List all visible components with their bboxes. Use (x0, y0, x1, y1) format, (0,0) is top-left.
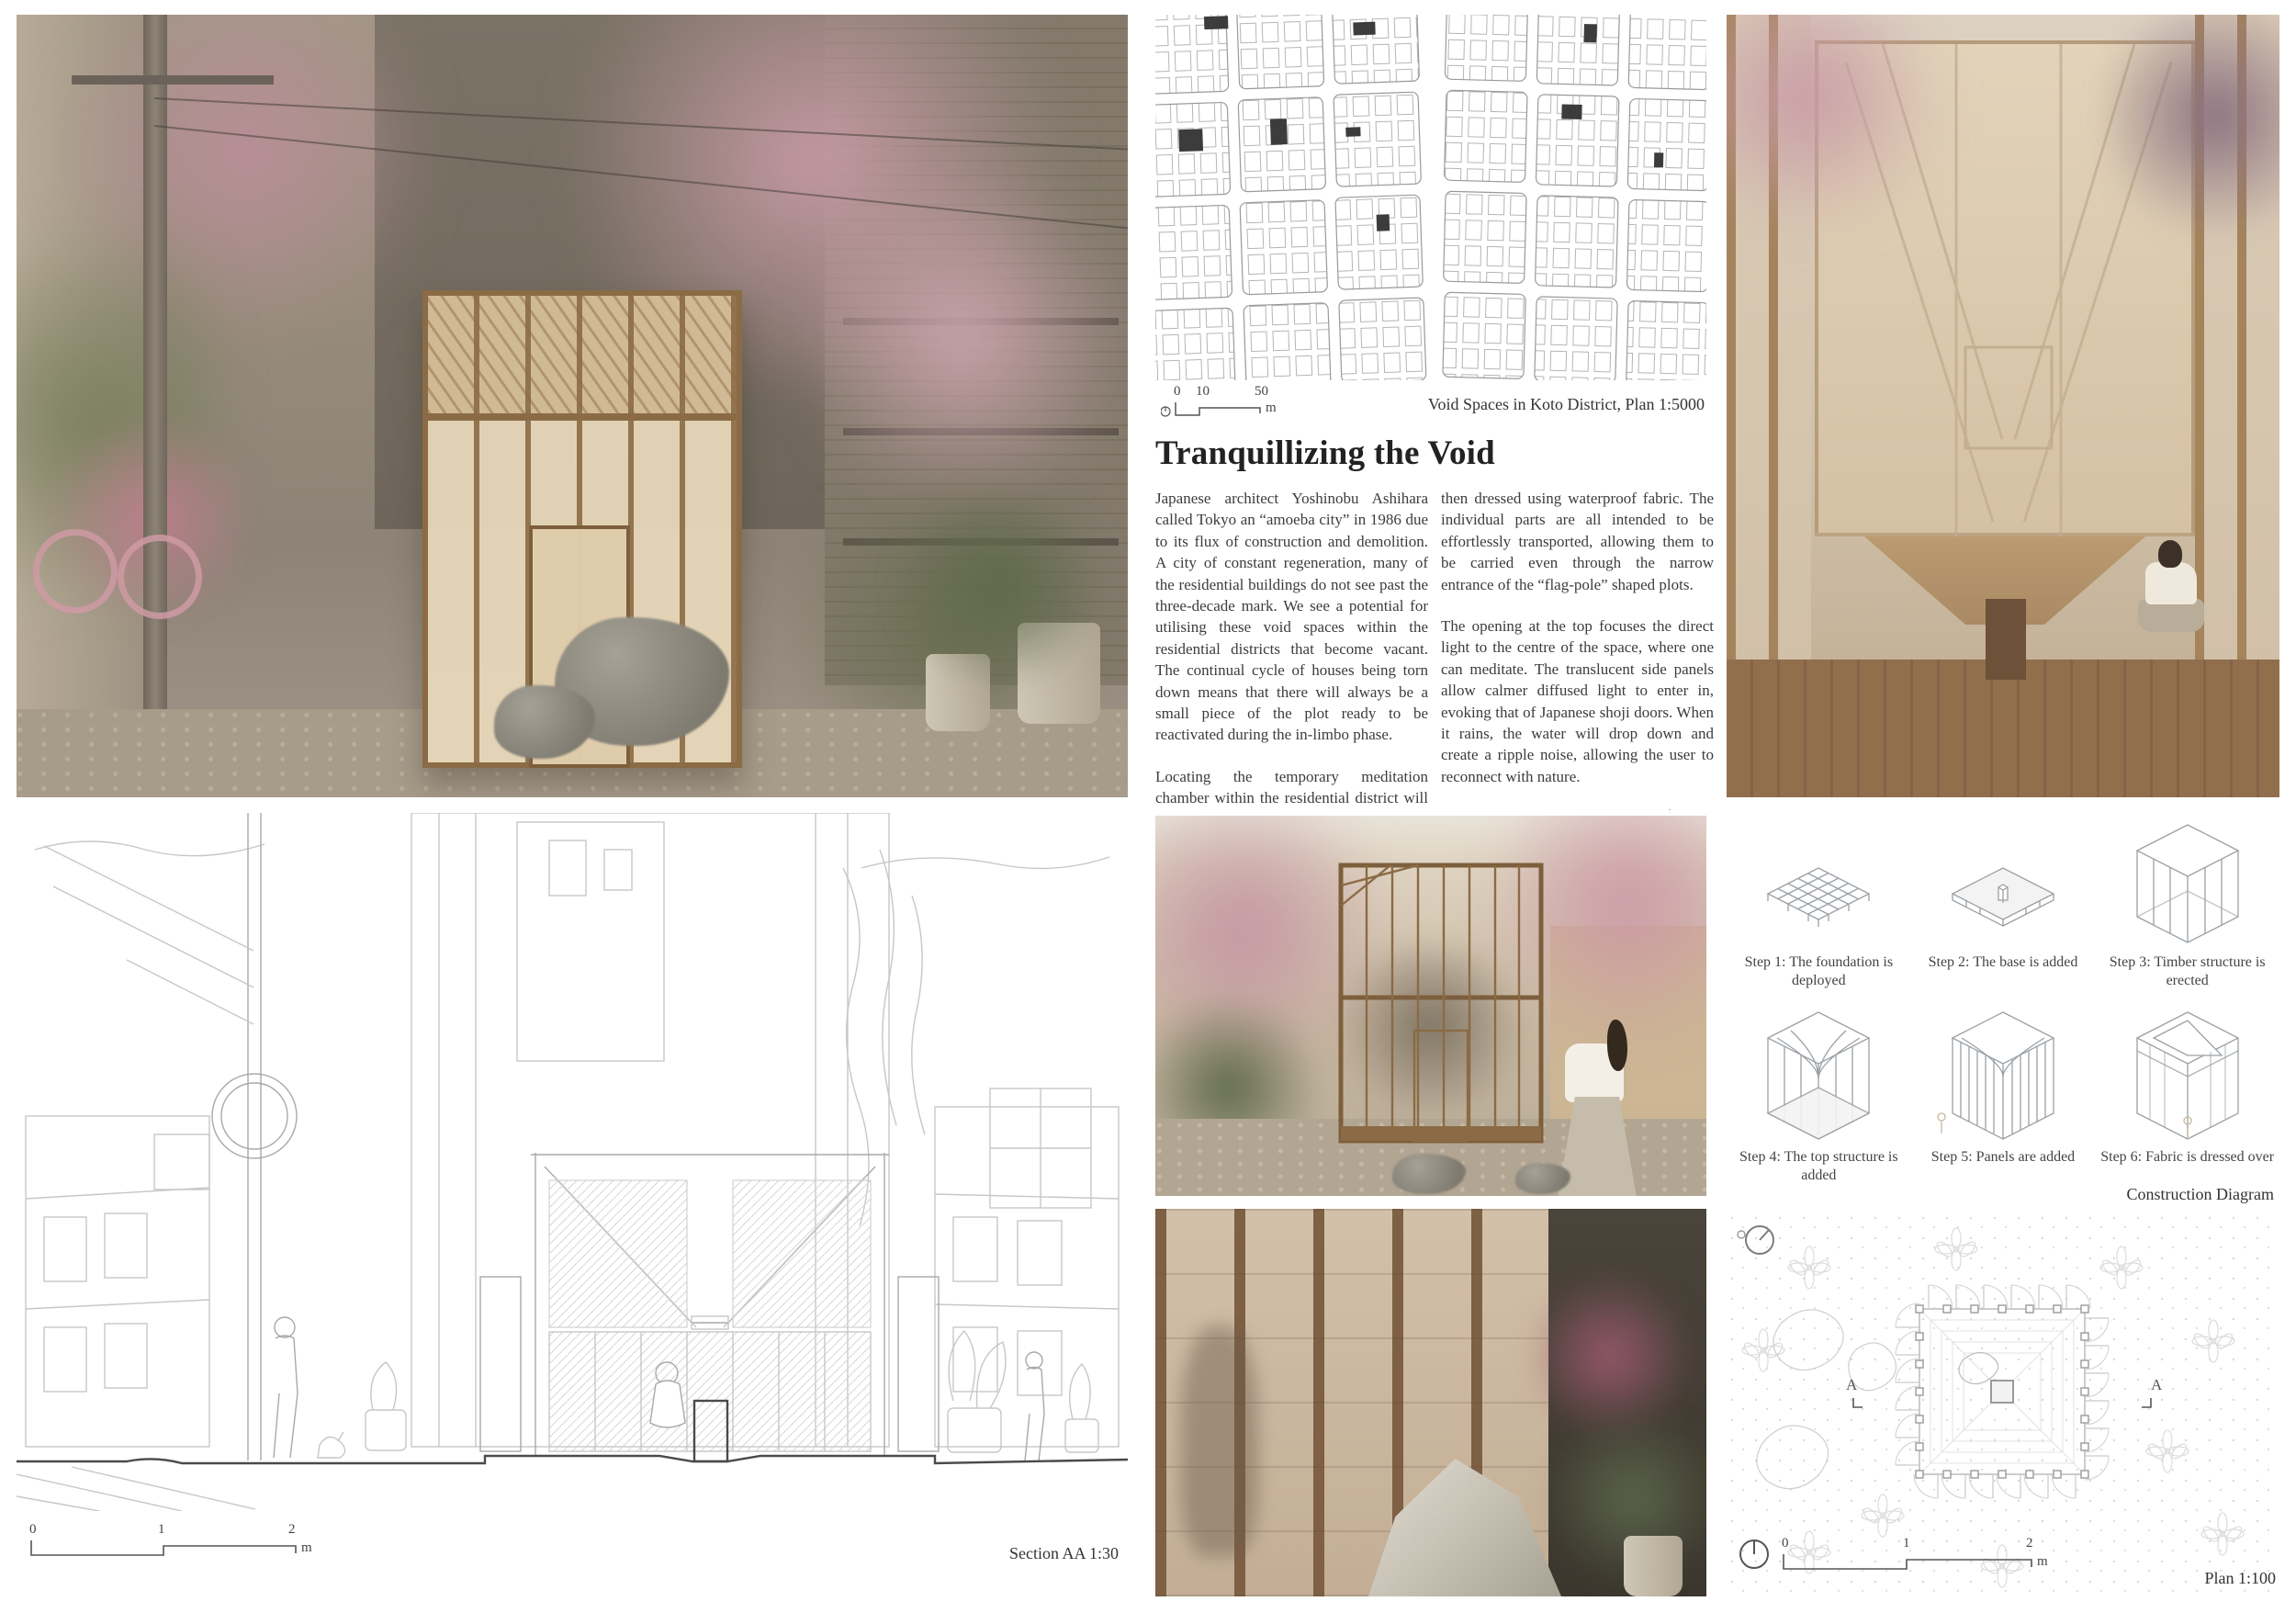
scale-tick: 10 (1196, 384, 1210, 400)
construction-step-6: Step 6: Fabric is dressed over (2095, 1010, 2279, 1205)
plan-drawing: A A 0 1 2 m Plan 1:100 (1727, 1212, 2279, 1596)
scale-tick: 0 (29, 1522, 37, 1538)
step-label: Step 5: Panels are added (1916, 1148, 2090, 1167)
step-label: Step 2: The base is added (1916, 953, 2090, 972)
step-label: Step 4: The top structure is added (1731, 1148, 1906, 1185)
shoji-panels-render-image (1155, 1209, 1706, 1596)
section-marker-A: A (2151, 1376, 2162, 1394)
scale-tick: 2 (288, 1522, 296, 1538)
blossom-canopy (788, 162, 1128, 511)
step-label: Step 3: Timber structure is erected (2100, 953, 2275, 990)
construction-step-1: Step 1: The foundation is deployed (1727, 816, 1911, 1010)
construction-step-4: Step 4: The top structure is added (1727, 1010, 1911, 1205)
section-scalebar: 0 1 2 m (29, 1522, 305, 1564)
base-iso-icon (1925, 816, 2081, 953)
timber-deck (1727, 660, 2279, 797)
construction-caption: Construction Diagram (2127, 1185, 2274, 1204)
interior-render-image (1727, 15, 2279, 797)
step-label: Step 1: The foundation is deployed (1731, 953, 1906, 990)
site-map-drawing (1155, 15, 1706, 380)
water-basin (1986, 599, 2026, 680)
section-lineart (17, 813, 1128, 1511)
figure-silhouette (1181, 1326, 1258, 1556)
bicycle-wheel (118, 535, 202, 619)
paragraph: Playing with the concept of Oku (奥), our… (1441, 807, 1714, 810)
scale-tick: 0 (1174, 384, 1181, 400)
north-arrow-icon (1736, 1536, 1773, 1573)
scale-unit: m (2037, 1554, 2048, 1570)
foundation-iso-icon (1740, 816, 1896, 953)
scale-tick: 0 (1782, 1536, 1789, 1551)
paragraph: Locating the temporary meditation chambe… (1155, 766, 1428, 810)
presentation-board: 0 1 2 m Section AA 1:30 (0, 0, 2296, 1624)
plant-pot (1624, 1536, 1683, 1596)
panels-iso-icon (1925, 1010, 2081, 1148)
frame-iso-icon (2110, 816, 2266, 953)
construction-diagram: Step 1: The foundation is deployed Step … (1727, 816, 2279, 1212)
scale-tick: 50 (1255, 384, 1268, 400)
plan-scalebar: 0 1 2 m (1782, 1536, 2002, 1578)
construction-step-2: Step 2: The base is added (1911, 816, 2096, 1010)
map-scalebar: 0 10 50 m (1161, 384, 1299, 426)
garden-walk-render-image (1155, 816, 1706, 1196)
section-marker-A: A (1846, 1376, 1857, 1394)
seated-woman-hair (2158, 540, 2182, 568)
scale-tick: 1 (158, 1522, 165, 1538)
plan-caption: Plan 1:100 (2204, 1569, 2276, 1588)
article-title: Tranquillizing the Void (1155, 434, 1714, 473)
scale-unit: m (1266, 400, 1277, 416)
step-label: Step 6: Fabric is dressed over (2100, 1148, 2275, 1167)
seated-woman (2145, 562, 2197, 604)
section-caption: Section AA 1:30 (1009, 1544, 1119, 1563)
article-column-1: Japanese architect Yoshinobu Ashihara ca… (1155, 488, 1428, 810)
article: Tranquillizing the Void Japanese archite… (1155, 434, 1714, 810)
construction-step-5: Step 5: Panels are added (1911, 1010, 2096, 1205)
fabric-iso-icon (2110, 1010, 2266, 1148)
paragraph: Japanese architect Yoshinobu Ashihara ca… (1155, 488, 1428, 746)
utility-pole-crossarm (72, 75, 274, 85)
site-map-panel: 0 10 50 m Void Spaces in Koto District, … (1155, 15, 1706, 428)
paragraph: then dressed using waterproof fabric. Th… (1441, 488, 1714, 595)
potted-plants (880, 494, 1119, 678)
section-drawing: 0 1 2 m Section AA 1:30 (17, 813, 1128, 1596)
paragraph: The opening at the top focuses the direc… (1441, 615, 1714, 787)
map-caption: Void Spaces in Koto District, Plan 1:500… (1428, 395, 1705, 414)
scale-unit: m (301, 1540, 312, 1556)
article-column-2: then dressed using waterproof fabric. Th… (1441, 488, 1714, 810)
scale-tick: 1 (1903, 1536, 1910, 1551)
utility-pole (143, 15, 167, 797)
scale-tick: 2 (2026, 1536, 2033, 1551)
hero-render-image (17, 15, 1128, 797)
pavilion-band (428, 413, 737, 421)
bicycle-wheel (33, 529, 118, 614)
top-structure-iso-icon (1740, 1010, 1896, 1148)
timber-frame-pavilion (1335, 860, 1547, 1163)
construction-step-3: Step 3: Timber structure is erected (2095, 816, 2279, 1010)
